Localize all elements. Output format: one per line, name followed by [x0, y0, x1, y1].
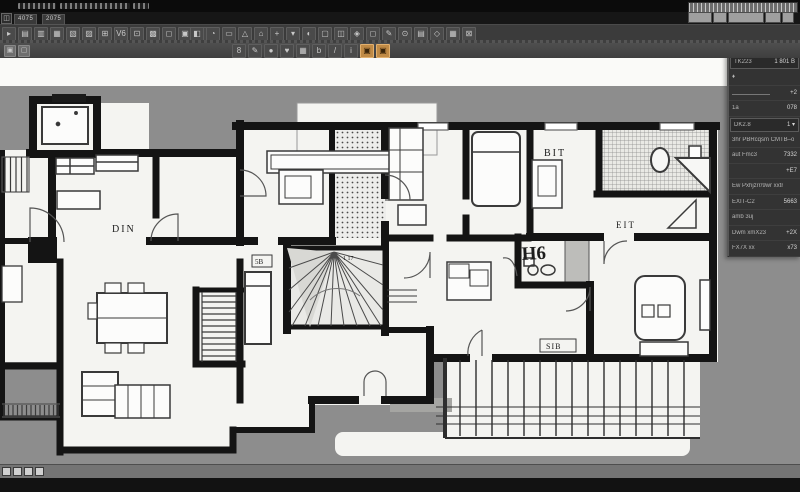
- nav-square[interactable]: [2, 467, 11, 476]
- label-bit: BIT: [544, 148, 566, 159]
- toolbar-icon[interactable]: ▦: [296, 44, 310, 58]
- ruler-button[interactable]: [728, 12, 764, 23]
- panel-row-label: aut Fmc3: [732, 152, 757, 158]
- toolbar-icon[interactable]: i: [344, 44, 358, 58]
- panel-row[interactable]: Ew Pxhjzrr/9wr xxtr: [729, 179, 800, 195]
- toolbar-icon[interactable]: ◔: [206, 27, 220, 41]
- label-din: DIN: [112, 224, 136, 235]
- nav-square[interactable]: [13, 467, 22, 476]
- toolbar-icon[interactable]: ▢: [18, 45, 30, 57]
- toolbar-icon[interactable]: ▸: [2, 27, 16, 41]
- panel-row-label: 3hr PBRcqsm CMTB–o: [732, 137, 794, 143]
- drawing-canvas[interactable]: DIN BIT EIT H6 SIB 5B 1 17: [0, 58, 800, 492]
- secondary-toolbar: ▣▢ 8✎●♥▦b/i▣▣: [0, 43, 800, 58]
- panel-row[interactable]: Dwm xmX23+2X: [729, 226, 800, 242]
- ruler-button[interactable]: [782, 12, 794, 23]
- title-bar: [0, 0, 800, 12]
- toolbar-icon[interactable]: 8: [232, 44, 246, 58]
- toolbar-icon[interactable]: +: [270, 27, 284, 41]
- panel-row-value: x73: [787, 245, 797, 251]
- panel-row[interactable]: +2: [729, 86, 800, 102]
- ruler-button[interactable]: [713, 12, 727, 23]
- toolbar2-group-left: ▣▢: [4, 45, 30, 57]
- panel-row[interactable]: +E7: [729, 164, 800, 180]
- panel-row-label: DK2.8: [734, 122, 751, 128]
- panel-row[interactable]: DK2.81 ▾: [730, 118, 799, 132]
- panel-row-value: +2X: [786, 230, 797, 236]
- toolbar2-group-center: 8✎●♥▦b/i▣▣: [232, 44, 390, 58]
- toolbar-icon[interactable]: ✎: [382, 27, 396, 41]
- toolbar-icon[interactable]: ⊙: [398, 27, 412, 41]
- panel-row-label: ♦: [732, 74, 735, 80]
- panel-row-label: Dwm xmX23: [732, 230, 766, 236]
- panel-row[interactable]: ♦: [729, 70, 800, 86]
- panel-row-value: 078: [787, 105, 797, 111]
- label-h6: H6: [521, 243, 546, 265]
- toolbar-icon[interactable]: ▥: [34, 27, 48, 41]
- toolbar-icon[interactable]: ◻: [366, 27, 380, 41]
- toolbar-icon[interactable]: b: [312, 44, 326, 58]
- panel-row-value: 1 ▾: [787, 121, 795, 128]
- toolbar-icon[interactable]: ⊡: [130, 27, 144, 41]
- panel-row[interactable]: 3hr PBRcqsm CMTB–o: [729, 133, 800, 149]
- ruler-buttons: [688, 12, 794, 21]
- toolbar-icon[interactable]: ▧: [66, 27, 80, 41]
- panel-row-label: FX7X xx: [732, 245, 755, 251]
- app-icon[interactable]: ◫: [1, 13, 12, 24]
- toolbar-icon[interactable]: ▤: [414, 27, 428, 41]
- cad-application-window: ◫ 4075 2075 ▸▤▥▦▧▨⊞V6⊡▩◻▣◌ ◧◔▭△⌂+▾◐▢◫◈◻✎…: [0, 0, 800, 492]
- canvas-bottom-strip: [0, 464, 800, 479]
- nav-square[interactable]: [35, 467, 44, 476]
- ruler-button[interactable]: [688, 12, 712, 23]
- toolbar-icon[interactable]: ●: [264, 44, 278, 58]
- status-bar: [0, 478, 800, 492]
- nav-square[interactable]: [24, 467, 33, 476]
- label-sib: SIB: [546, 342, 561, 351]
- toolbar-icon[interactable]: ▣: [360, 44, 374, 58]
- toolbar1-group-center: ◧◔▭△⌂+▾◐▢◫◈◻✎⊙▤◇▦⊠: [190, 27, 476, 41]
- toolbar-icon[interactable]: /: [328, 44, 342, 58]
- toolbar-icon[interactable]: ◫: [334, 27, 348, 41]
- toolbar-icon[interactable]: ⊞: [98, 27, 112, 41]
- title-smudge: [133, 3, 149, 9]
- panel-row-label: amb 3uj: [732, 214, 753, 220]
- toolbar1-group-left: ▸▤▥▦▧▨⊞V6⊡▩◻▣◌: [2, 27, 208, 41]
- toolbar-icon[interactable]: ◈: [350, 27, 364, 41]
- view-nav-squares[interactable]: [2, 467, 44, 476]
- panel-row-value: 7332: [784, 152, 797, 158]
- document-tab-row: [0, 12, 800, 24]
- toolbar-icon[interactable]: ◐: [302, 27, 316, 41]
- main-toolbar: ▸▤▥▦▧▨⊞V6⊡▩◻▣◌ ◧◔▭△⌂+▾◐▢◫◈◻✎⊙▤◇▦⊠: [0, 24, 800, 41]
- document-tab-1[interactable]: 4075: [14, 14, 37, 25]
- toolbar-icon[interactable]: ◧: [190, 27, 204, 41]
- toolbar-icon[interactable]: ▭: [222, 27, 236, 41]
- toolbar-icon[interactable]: V6: [114, 27, 128, 41]
- toolbar-icon[interactable]: ▦: [446, 27, 460, 41]
- toolbar-icon[interactable]: ▩: [146, 27, 160, 41]
- panel-row-label: Ew Pxhjzrr/9wr xxtr: [732, 183, 783, 189]
- toolbar-icon[interactable]: ▢: [318, 27, 332, 41]
- toolbar-icon[interactable]: ▦: [50, 27, 64, 41]
- toolbar-icon[interactable]: ◻: [162, 27, 176, 41]
- toolbar-icon[interactable]: ⊠: [462, 27, 476, 41]
- document-tab-2[interactable]: 2075: [42, 14, 65, 25]
- toolbar-icon[interactable]: ⌂: [254, 27, 268, 41]
- toolbar-icon[interactable]: ▣: [4, 45, 16, 57]
- label-117: 1 17: [343, 256, 354, 262]
- toolbar-icon[interactable]: ▾: [286, 27, 300, 41]
- toolbar-icon[interactable]: ✎: [248, 44, 262, 58]
- toolbar-icon[interactable]: ▨: [82, 27, 96, 41]
- menu-smudge: [18, 3, 56, 9]
- toolbar-icon[interactable]: ▤: [18, 27, 32, 41]
- panel-row-label: EXIT-C2: [732, 199, 755, 205]
- label-eit: EIT: [616, 220, 636, 230]
- toolbar-icon[interactable]: △: [238, 27, 252, 41]
- ruler-button[interactable]: [765, 12, 781, 23]
- label-5b: 5B: [255, 258, 264, 266]
- toolbar-icon[interactable]: ▣: [376, 44, 390, 58]
- panel-row[interactable]: FX7X xxx73: [729, 241, 800, 257]
- panel-row[interactable]: amb 3uj: [729, 210, 800, 226]
- panel-row-value: 5663: [784, 199, 797, 205]
- panel-row-label: TK223: [734, 59, 752, 65]
- panel-row[interactable]: 1a078: [729, 101, 800, 117]
- panel-row-label: 1a: [732, 105, 739, 111]
- panel-row[interactable]: aut Fmc37332: [729, 148, 800, 164]
- panel-row-value: +2: [790, 90, 797, 96]
- toolbar-icon[interactable]: ♥: [280, 44, 294, 58]
- panel-row[interactable]: EXIT-C25663: [729, 195, 800, 211]
- panel-row-value: 1 801 B: [774, 59, 795, 65]
- toolbar-icon[interactable]: ◇: [430, 27, 444, 41]
- panel-row-value: +E7: [786, 168, 797, 174]
- floor-plan-drawing[interactable]: DIN BIT EIT H6 SIB 5B 1 17: [0, 0, 800, 492]
- panel-row-label: [732, 90, 770, 95]
- document-title-smudge: [60, 3, 130, 9]
